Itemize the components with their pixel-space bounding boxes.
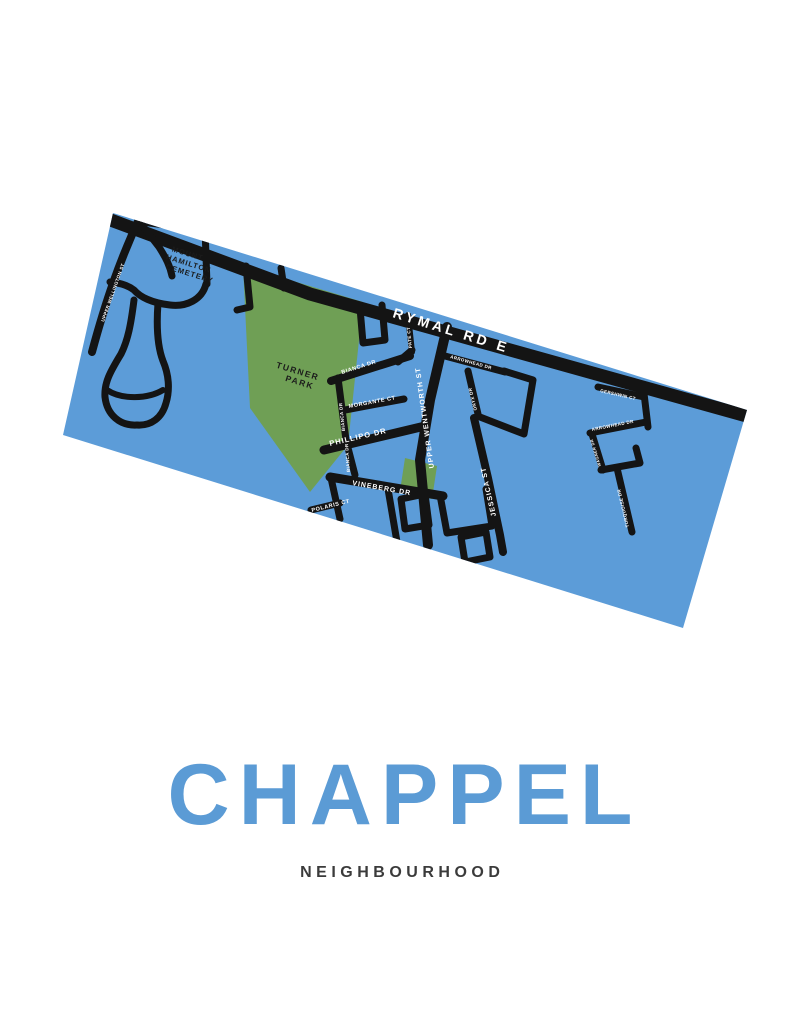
page-subtitle: NEIGHBOURHOOD	[0, 864, 800, 882]
neighbourhood-map-poster: MOUNT HAMILTON CEMETERY TURNER PARK RYMA…	[0, 0, 800, 1018]
map-graphic: MOUNT HAMILTON CEMETERY TURNER PARK RYMA…	[0, 0, 800, 700]
page-title: CHAPPEL	[0, 752, 800, 838]
